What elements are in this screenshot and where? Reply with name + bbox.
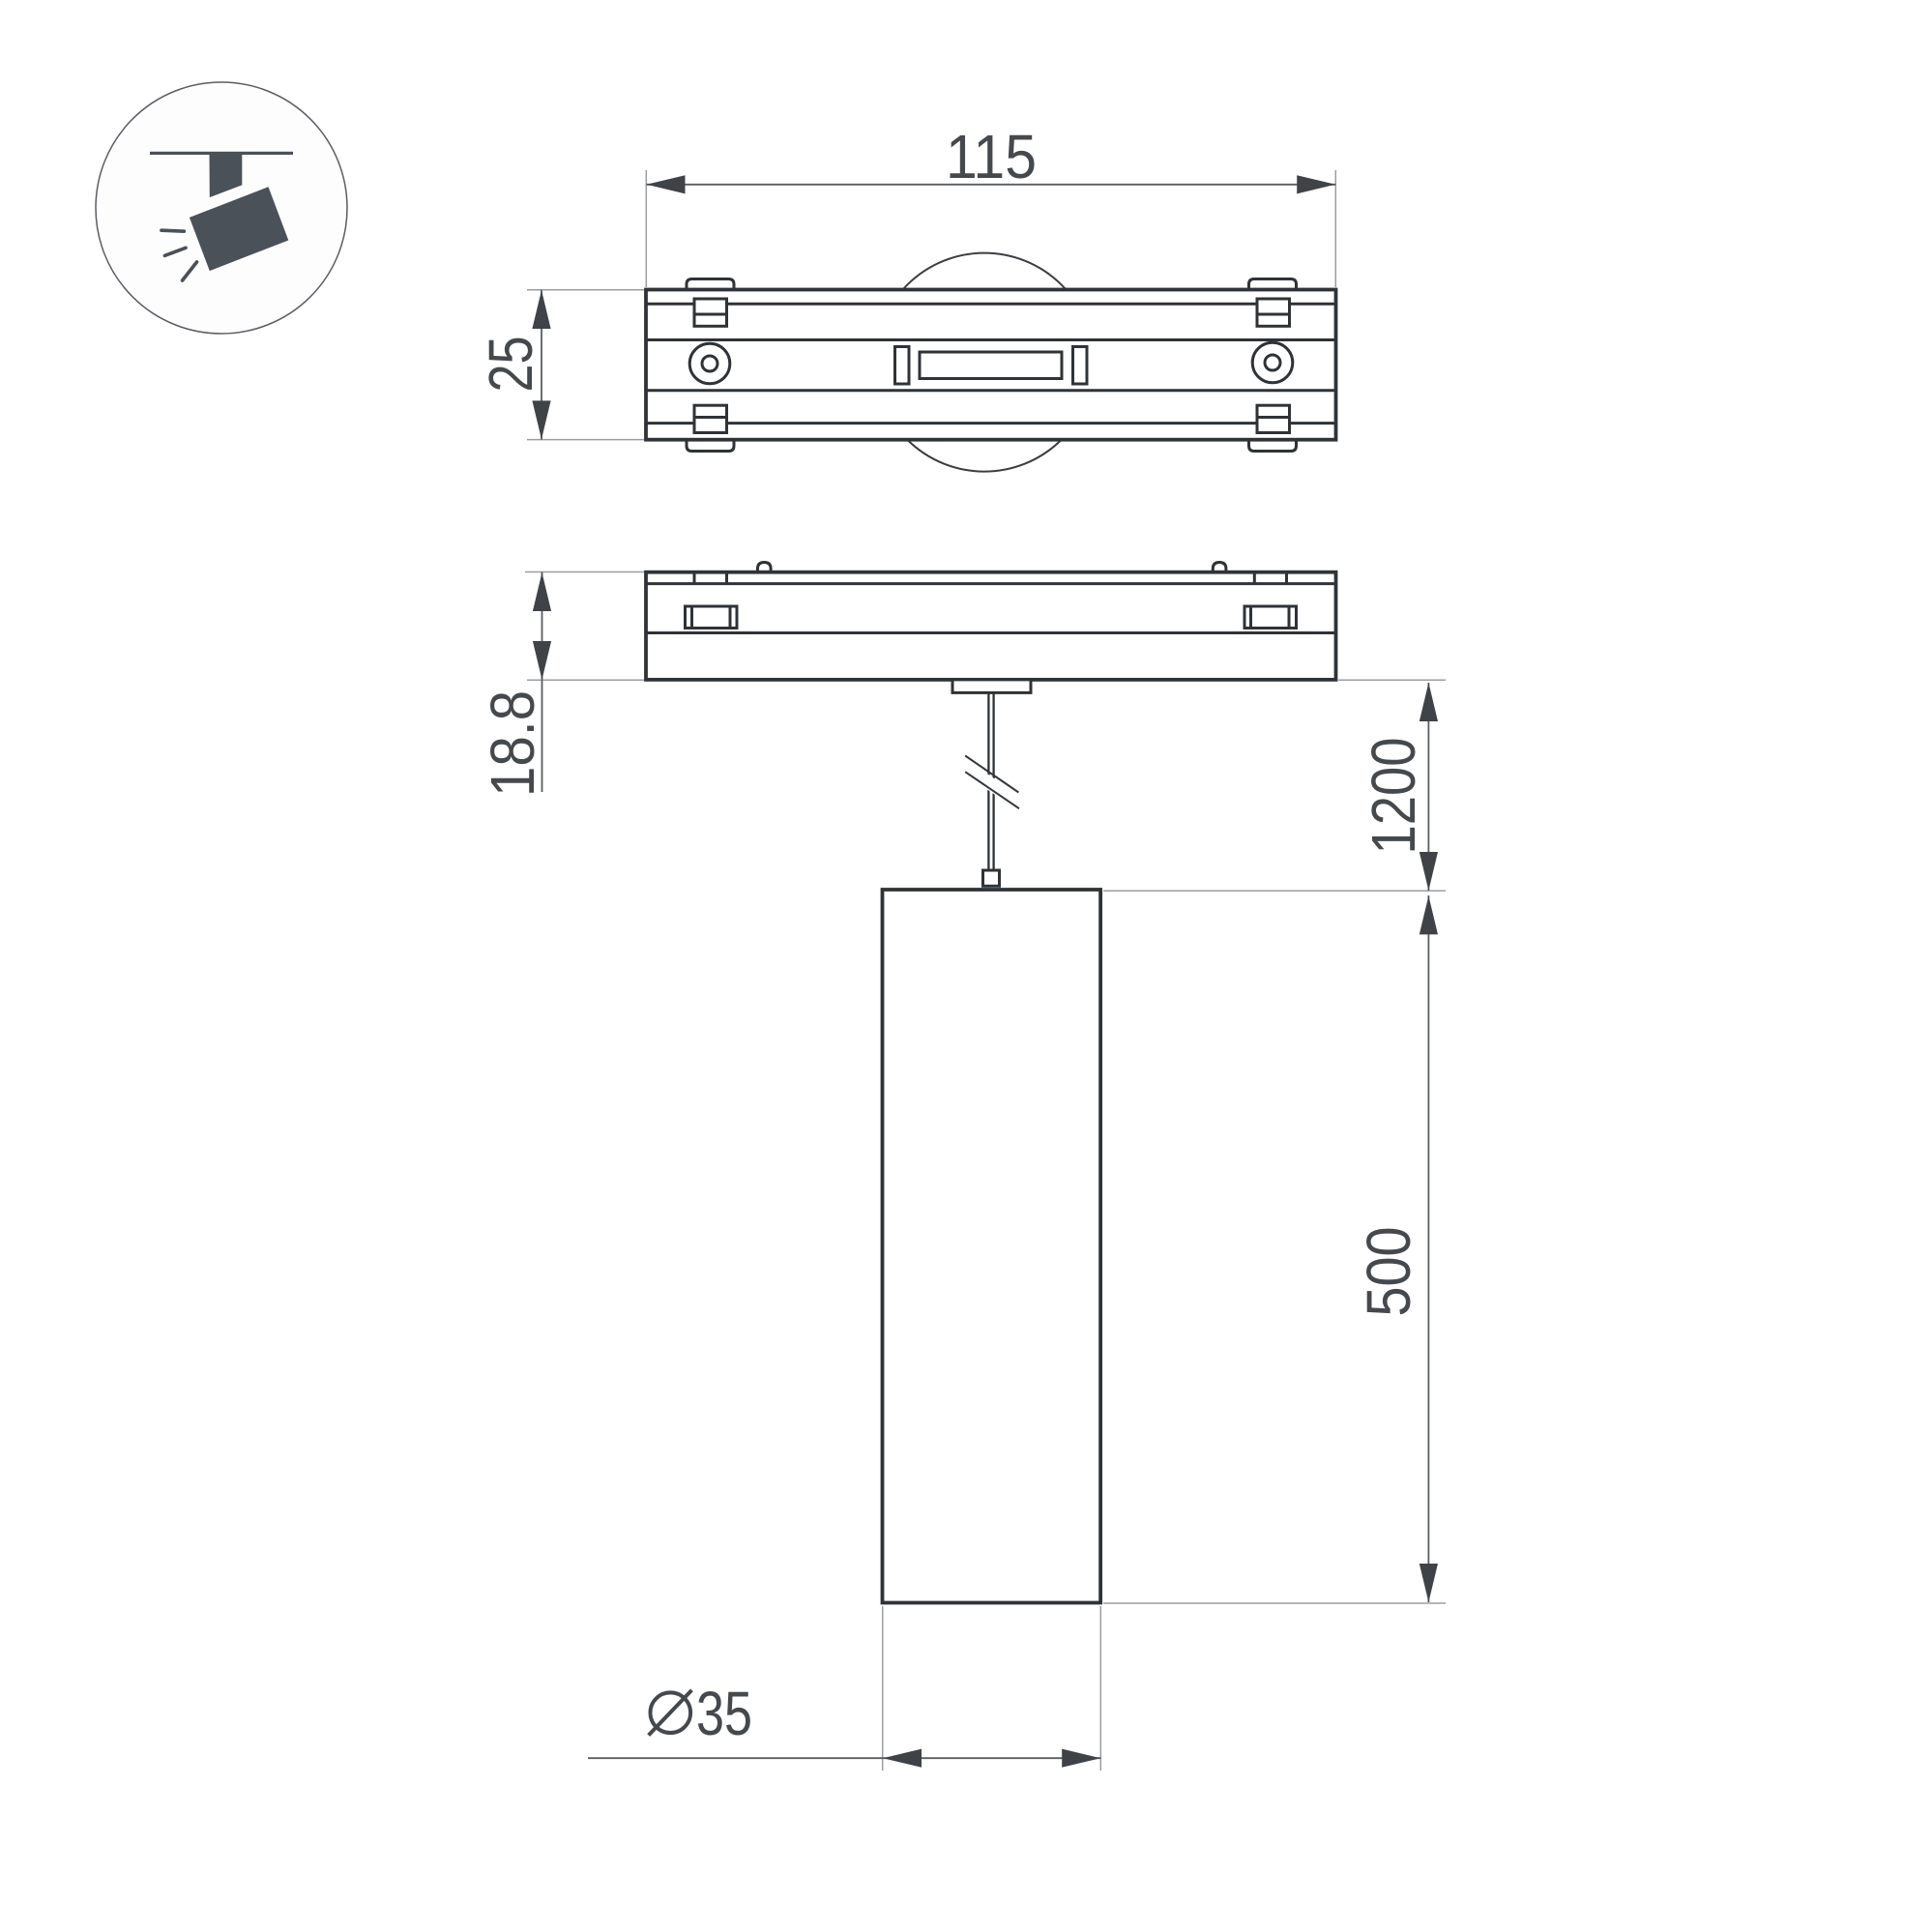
- svg-text:25: 25: [476, 337, 545, 393]
- svg-text:18.8: 18.8: [478, 690, 547, 797]
- svg-text:1200: 1200: [1359, 738, 1428, 855]
- svg-text:35: 35: [696, 1679, 752, 1748]
- svg-text:115: 115: [946, 122, 1037, 191]
- svg-text:500: 500: [1354, 1227, 1423, 1317]
